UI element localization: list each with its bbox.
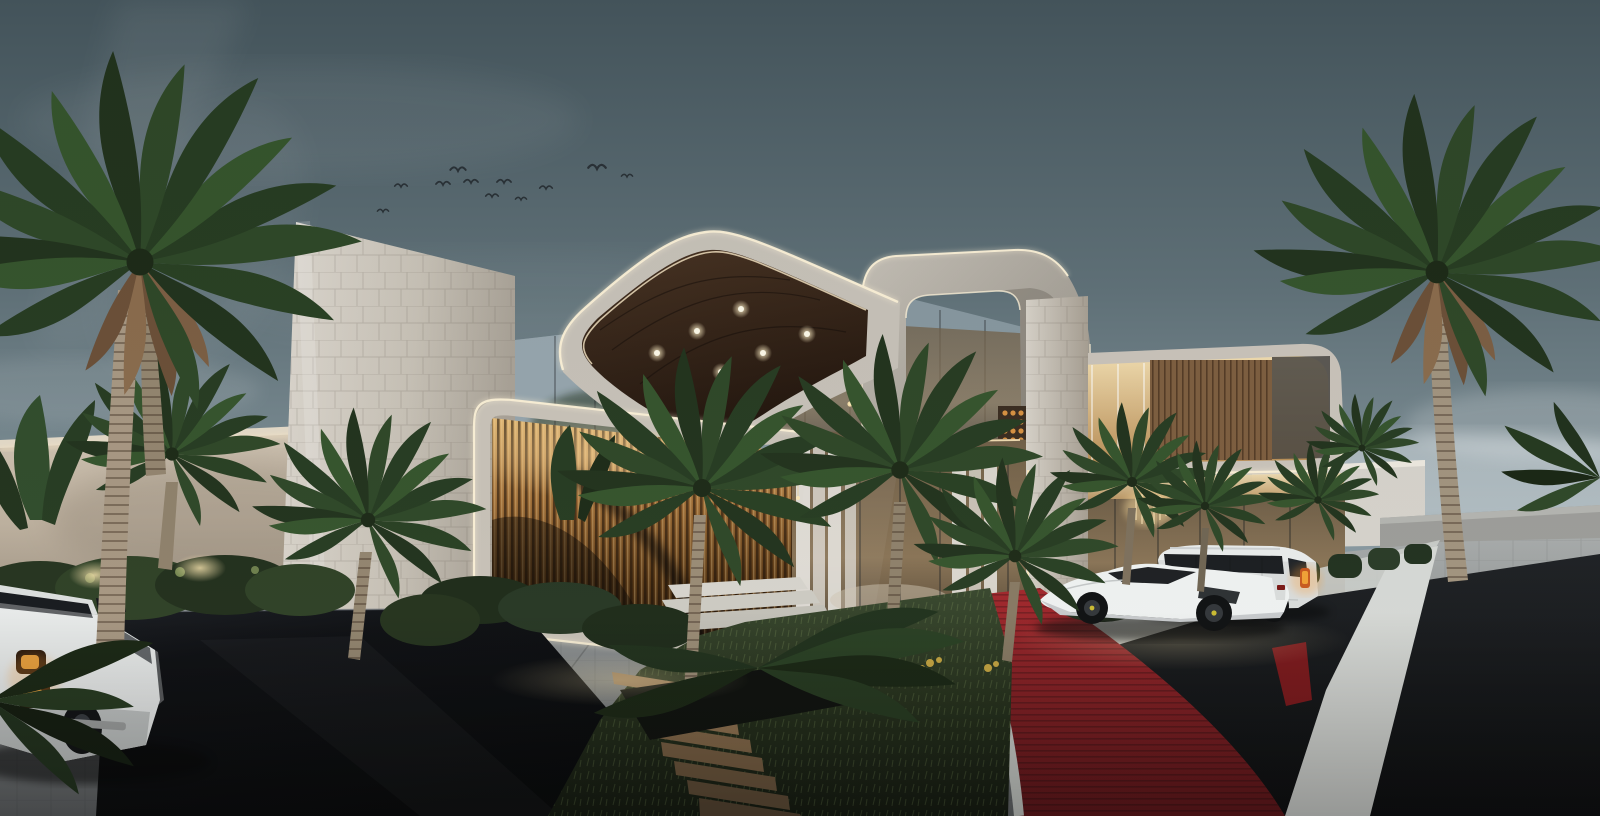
vignette <box>0 0 1600 816</box>
villa-rendering <box>0 0 1600 816</box>
scene <box>0 0 1600 816</box>
